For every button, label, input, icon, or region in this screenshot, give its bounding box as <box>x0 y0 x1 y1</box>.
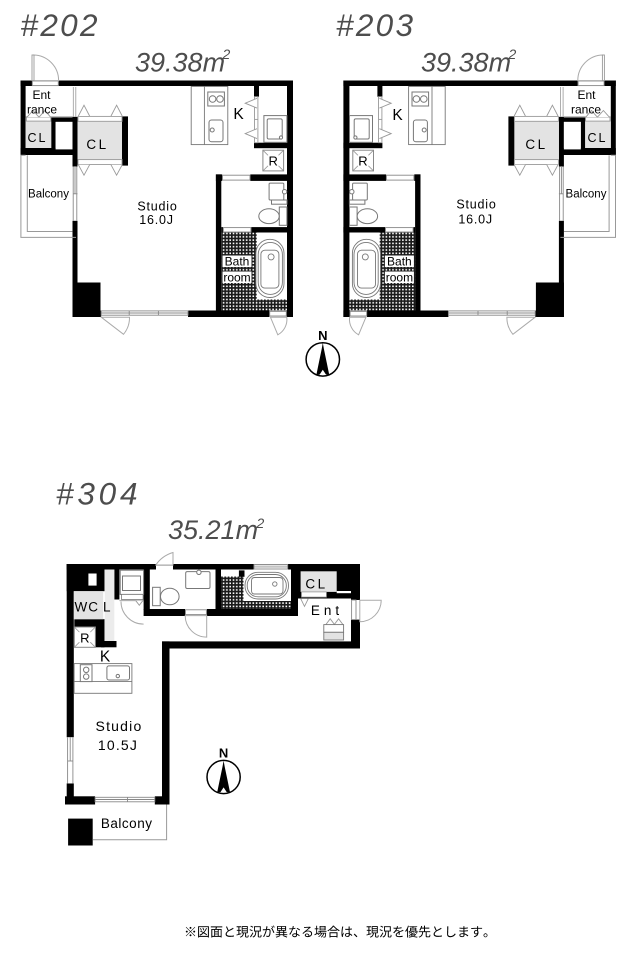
svg-text:CL: CL <box>305 576 327 591</box>
svg-text:K: K <box>233 106 244 123</box>
svg-text:R: R <box>358 153 367 168</box>
svg-text:39.38m: 39.38m <box>421 48 511 78</box>
svg-text:Ent: Ent <box>32 88 51 102</box>
svg-text:35.21m: 35.21m <box>168 515 258 545</box>
svg-text:R: R <box>80 630 89 645</box>
svg-text:Ent: Ent <box>577 88 596 102</box>
svg-text:CL: CL <box>525 137 547 152</box>
svg-text:Studio: Studio <box>456 197 496 211</box>
svg-text:CL: CL <box>86 137 108 152</box>
svg-text:Studio: Studio <box>137 199 177 213</box>
svg-text:N: N <box>318 328 327 343</box>
svg-text:10.5J: 10.5J <box>98 737 138 753</box>
svg-text:2: 2 <box>256 515 265 531</box>
svg-text:rance: rance <box>571 103 601 117</box>
svg-text:CL: CL <box>28 131 48 145</box>
svg-text:Ent: Ent <box>311 603 343 618</box>
svg-text:39.38m: 39.38m <box>135 48 225 78</box>
svg-text:#304: #304 <box>56 476 141 512</box>
svg-text:2: 2 <box>222 46 231 62</box>
svg-text:room: room <box>386 271 413 285</box>
svg-text:2: 2 <box>508 46 517 62</box>
svg-text:room: room <box>223 271 250 285</box>
svg-text:N: N <box>219 745 228 760</box>
svg-text:R: R <box>269 153 278 168</box>
svg-text:L: L <box>103 600 111 615</box>
svg-text:K: K <box>100 649 111 666</box>
svg-text:16.0J: 16.0J <box>458 213 493 227</box>
svg-text:#203: #203 <box>336 7 415 43</box>
svg-text:WC: WC <box>75 600 100 615</box>
svg-text:Studio: Studio <box>96 718 143 734</box>
svg-text:CL: CL <box>588 131 608 145</box>
svg-text:Bath: Bath <box>387 255 412 269</box>
svg-text:Balcony: Balcony <box>566 189 607 201</box>
svg-text:Balcony: Balcony <box>101 816 153 831</box>
svg-text:rance: rance <box>27 103 57 117</box>
svg-text:Bath: Bath <box>225 255 250 269</box>
svg-text:Balcony: Balcony <box>28 189 69 201</box>
svg-text:16.0J: 16.0J <box>139 213 174 227</box>
svg-text:K: K <box>392 107 403 124</box>
svg-text:#202: #202 <box>21 7 100 43</box>
